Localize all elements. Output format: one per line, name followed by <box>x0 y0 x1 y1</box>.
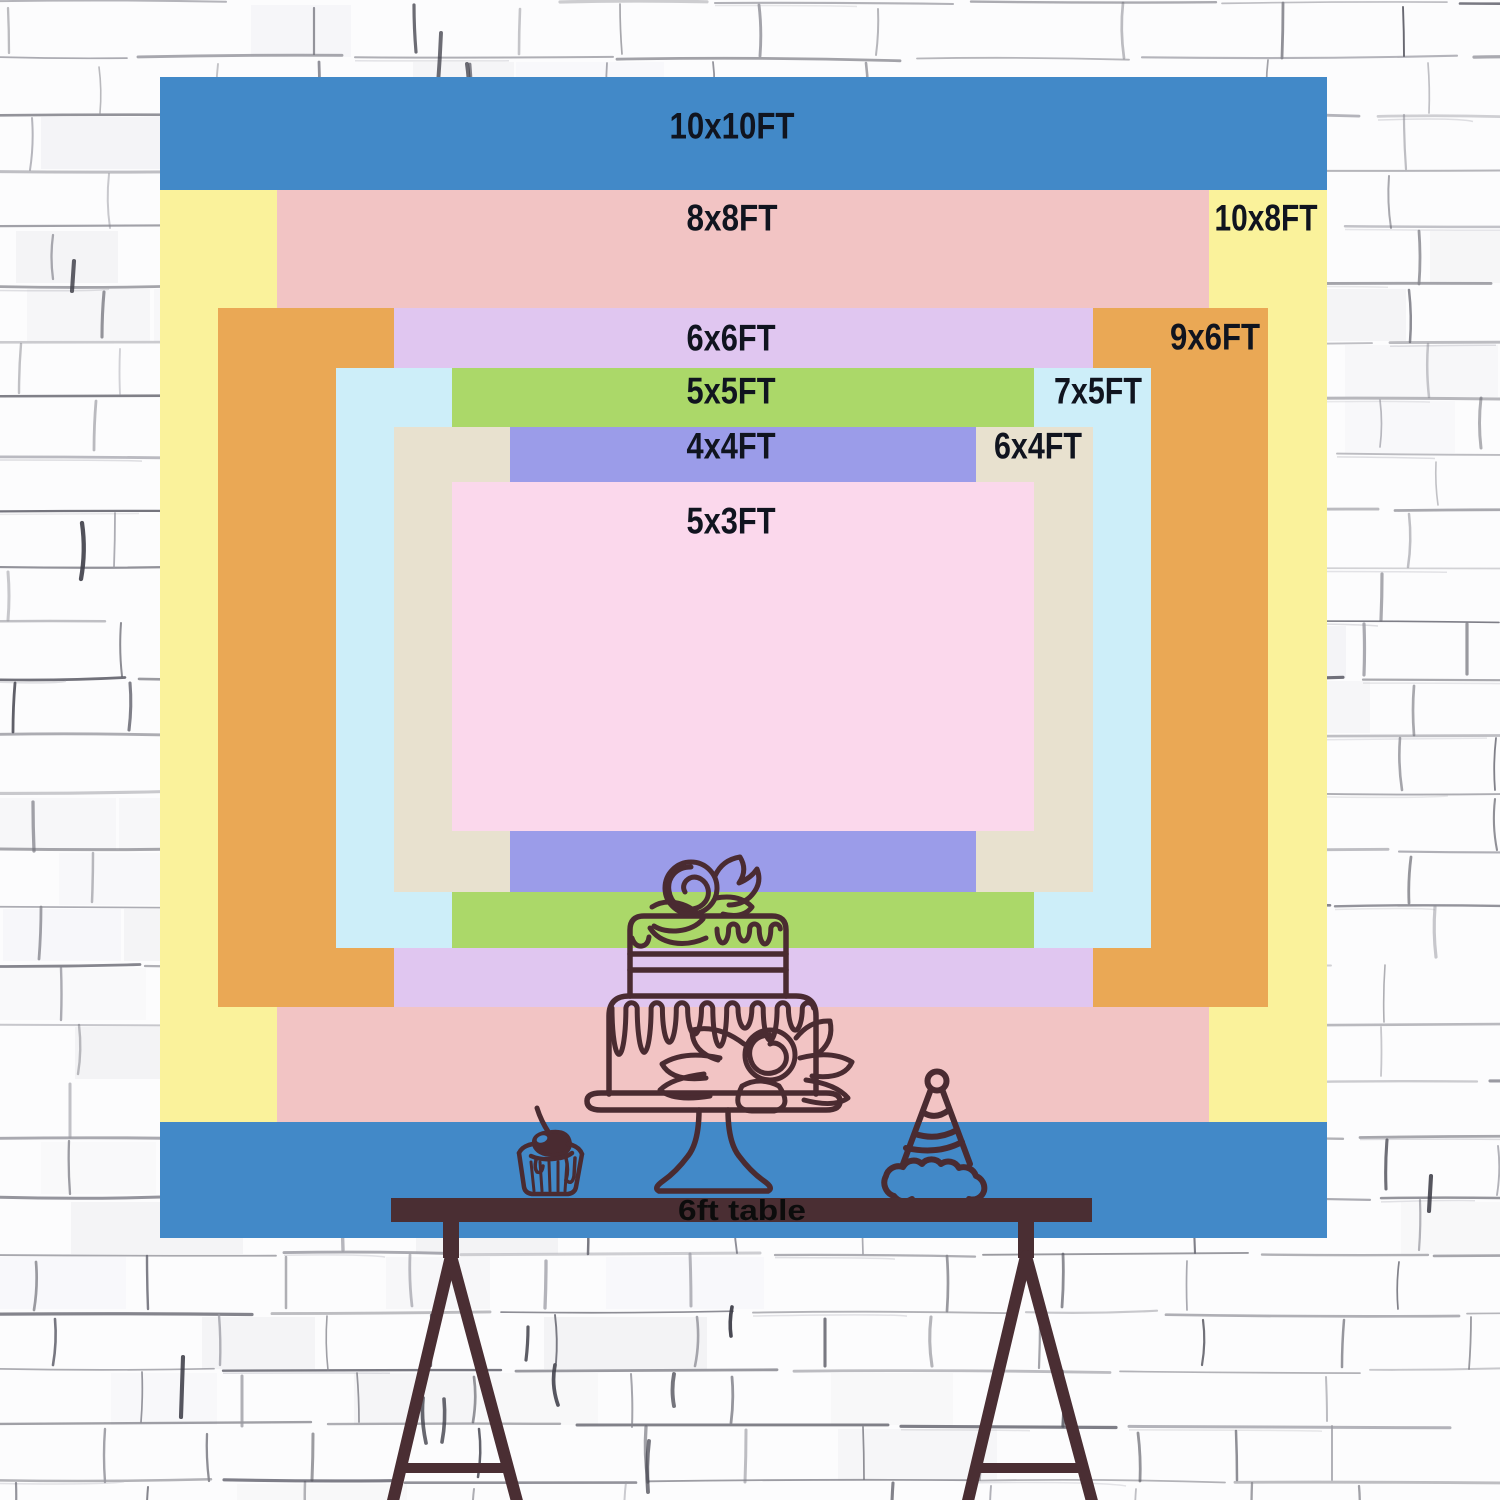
svg-text:7x5FT: 7x5FT <box>1054 371 1142 412</box>
svg-text:5x3FT: 5x3FT <box>687 501 776 542</box>
svg-text:6ft table: 6ft table <box>678 1195 806 1227</box>
svg-text:9x6FT: 9x6FT <box>1170 317 1260 358</box>
svg-text:6x6FT: 6x6FT <box>687 318 776 359</box>
svg-text:6x4FT: 6x4FT <box>994 426 1082 467</box>
svg-text:10x8FT: 10x8FT <box>1215 198 1318 239</box>
svg-text:4x4FT: 4x4FT <box>687 426 776 467</box>
svg-text:5x5FT: 5x5FT <box>687 371 776 412</box>
svg-text:10x10FT: 10x10FT <box>670 106 795 147</box>
svg-text:8x8FT: 8x8FT <box>687 198 778 239</box>
